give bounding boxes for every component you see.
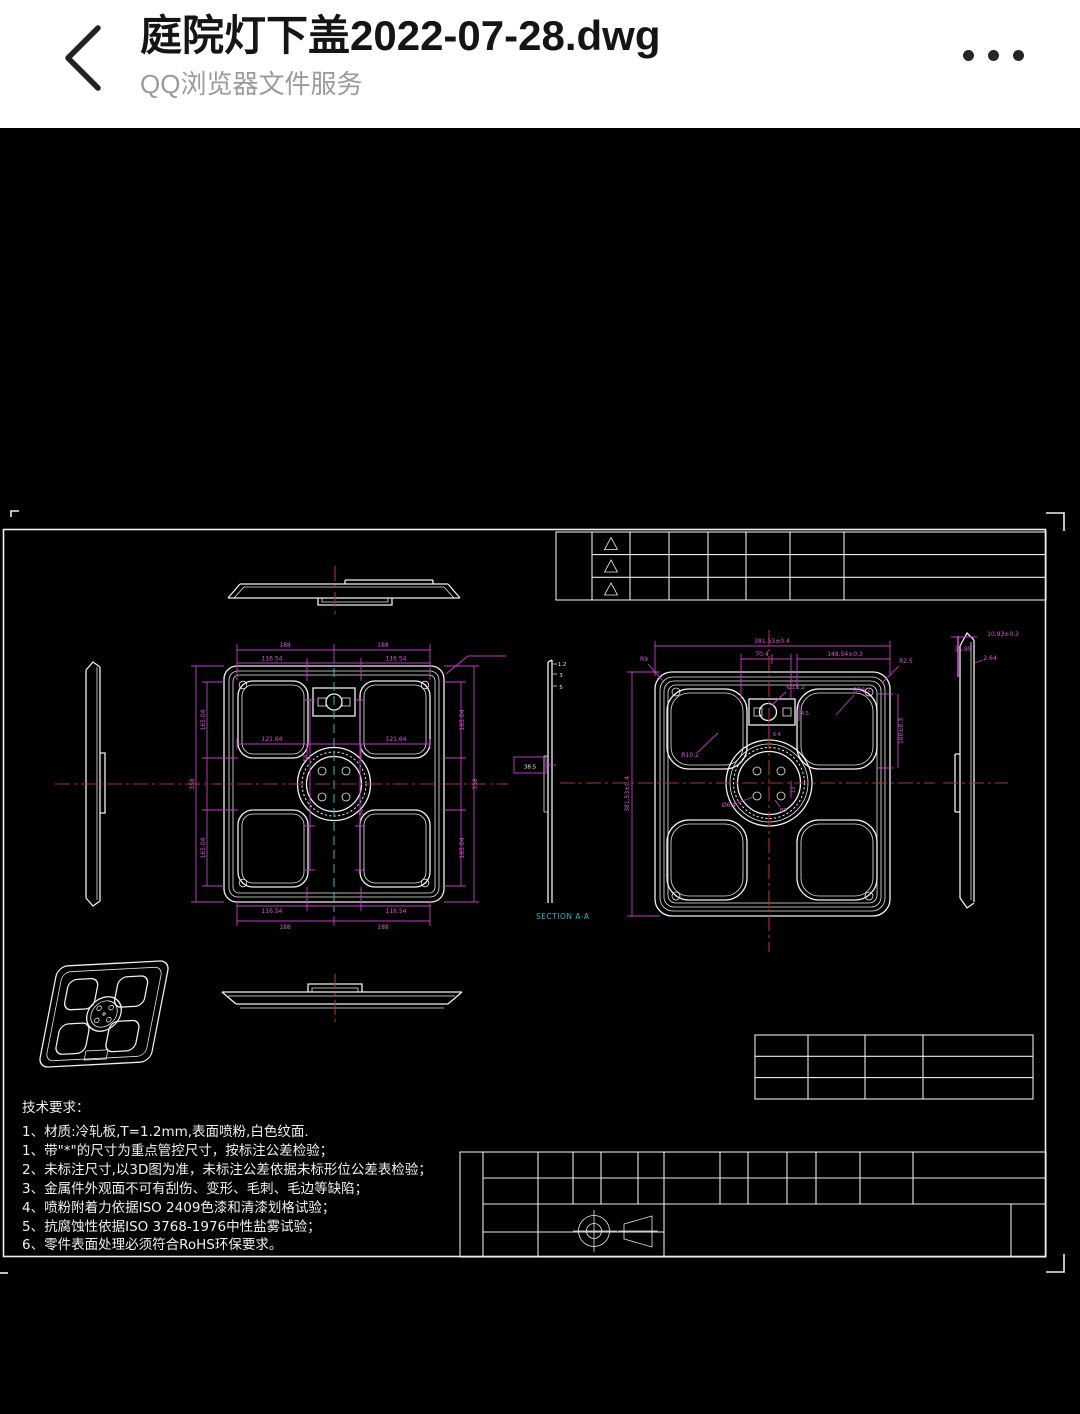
top-profile-view bbox=[228, 566, 460, 618]
svg-text:38.5: 38.5 bbox=[524, 765, 537, 771]
revision-triangle-icon bbox=[605, 560, 618, 572]
section-label: SECTION A-A bbox=[536, 912, 590, 921]
main-plan-view bbox=[224, 666, 444, 912]
svg-text:188: 188 bbox=[377, 642, 389, 649]
svg-text:165.04: 165.04 bbox=[459, 837, 466, 858]
svg-text:165.04: 165.04 bbox=[459, 709, 466, 730]
svg-text:3、金属件外观面不可有刮伤、变形、毛刺、毛边等缺陷；: 3、金属件外观面不可有刮伤、变形、毛刺、毛边等缺陷； bbox=[22, 1180, 368, 1197]
svg-text:116.54: 116.54 bbox=[262, 656, 283, 663]
svg-text:165.04: 165.04 bbox=[200, 837, 207, 858]
svg-text:10.93±0.3: 10.93±0.3 bbox=[987, 631, 1019, 638]
svg-text:R9: R9 bbox=[640, 656, 648, 663]
svg-text:4、喷粉附着力依据ISO 2409色漆和清漆划格试验；: 4、喷粉附着力依据ISO 2409色漆和清漆划格试验； bbox=[22, 1199, 335, 1216]
svg-text:58: 58 bbox=[359, 809, 365, 815]
tech-heading: 技术要求： bbox=[22, 1100, 90, 1116]
svg-text:100±0.3: 100±0.3 bbox=[898, 718, 905, 744]
revision-triangle-icon bbox=[605, 583, 618, 595]
section-view bbox=[655, 672, 890, 916]
svg-text:121.64: 121.64 bbox=[386, 736, 407, 743]
svg-text:5、抗腐蚀性依据ISO 3768-1976中性盐雾试验；: 5、抗腐蚀性依据ISO 3768-1976中性盐雾试验； bbox=[22, 1219, 321, 1235]
title-block bbox=[460, 1152, 1046, 1257]
svg-text:6.4: 6.4 bbox=[773, 732, 781, 738]
svg-text:5: 5 bbox=[559, 685, 563, 691]
svg-text:35.95: 35.95 bbox=[954, 646, 971, 653]
svg-text:1.2: 1.2 bbox=[558, 662, 567, 668]
cad-drawing: 188 188 116.54 116.54 121.64 121.64 116.… bbox=[0, 128, 1080, 1409]
svg-text:188: 188 bbox=[279, 924, 291, 931]
svg-text:6、零件表面处理必须符合RoHS环保要求。: 6、零件表面处理必须符合RoHS环保要求。 bbox=[22, 1237, 282, 1253]
isometric-view bbox=[38, 960, 170, 1067]
right-profile-view: 10.93±0.3 35.95 2.64 bbox=[951, 631, 1019, 908]
svg-text:R10.2: R10.2 bbox=[681, 752, 699, 759]
svg-text:R38.1: R38.1 bbox=[853, 687, 871, 694]
svg-text:148.54±0.3: 148.54±0.3 bbox=[827, 651, 863, 658]
cad-preview-canvas[interactable]: 188 188 116.54 116.54 121.64 121.64 116.… bbox=[0, 128, 1080, 1409]
back-chevron-icon bbox=[68, 28, 98, 88]
svg-text:Ø8: Ø8 bbox=[779, 807, 786, 814]
section-strip: 1.2 3 5 38.5 SECTION A-A bbox=[514, 660, 590, 921]
svg-text:116.54: 116.54 bbox=[262, 908, 283, 915]
svg-text:381.53±0.4: 381.53±0.4 bbox=[754, 638, 790, 645]
svg-text:Ø15.2: Ø15.2 bbox=[787, 684, 805, 691]
svg-text:188: 188 bbox=[377, 924, 389, 931]
parts-table bbox=[755, 1035, 1033, 1099]
svg-text:R2.5: R2.5 bbox=[899, 658, 913, 665]
more-menu-button[interactable] bbox=[963, 50, 1024, 61]
svg-text:2.64: 2.64 bbox=[983, 655, 997, 662]
svg-text:Ø6.4: Ø6.4 bbox=[722, 802, 736, 809]
svg-text:3: 3 bbox=[559, 673, 563, 679]
svg-text:58: 58 bbox=[303, 755, 309, 761]
tech-requirements: 技术要求： 1、材质:冷轧板,T=1.2mm,表面喷粉,白色纹面. 1、带"*"… bbox=[22, 1100, 432, 1253]
svg-text:70.4: 70.4 bbox=[755, 651, 769, 658]
dot-icon bbox=[1013, 50, 1024, 61]
viewer-header: 庭院灯下盖2022-07-28.dwg QQ浏览器文件服务 bbox=[0, 0, 1080, 128]
svg-text:1、带"*"的尺寸为重点管控尺寸，按标注公差检验；: 1、带"*"的尺寸为重点管控尺寸，按标注公差检验； bbox=[22, 1143, 333, 1159]
svg-text:1、材质:冷轧板,T=1.2mm,表面喷粉,白色纹面.: 1、材质:冷轧板,T=1.2mm,表面喷粉,白色纹面. bbox=[22, 1123, 309, 1140]
svg-text:4.5: 4.5 bbox=[801, 711, 809, 717]
svg-text:2、未标注尺寸,以3D图为准，未标注公差依据未标形位公差表检: 2、未标注尺寸,以3D图为准，未标注公差依据未标形位公差表检验； bbox=[22, 1162, 432, 1178]
svg-text:116.54: 116.54 bbox=[386, 908, 407, 915]
bottom-profile-view bbox=[222, 974, 462, 1022]
dot-icon bbox=[988, 50, 999, 61]
projection-symbol-icon bbox=[573, 1210, 658, 1252]
qq-browser-file-viewer: { "header": { "title": "庭院灯下盖2022-07-28.… bbox=[0, 0, 1080, 1409]
svg-text:381.53±0.4: 381.53±0.4 bbox=[624, 776, 631, 812]
file-title: 庭院灯下盖2022-07-28.dwg bbox=[140, 10, 920, 62]
file-source-label: QQ浏览器文件服务 bbox=[140, 64, 920, 104]
svg-text:116.54: 116.54 bbox=[386, 656, 407, 663]
svg-text:165.04: 165.04 bbox=[200, 709, 207, 730]
revision-triangle-icon bbox=[605, 538, 618, 550]
file-titles: 庭院灯下盖2022-07-28.dwg QQ浏览器文件服务 bbox=[140, 10, 920, 104]
svg-text:13: 13 bbox=[791, 787, 797, 793]
revision-table bbox=[556, 532, 1046, 600]
centerlines bbox=[55, 630, 1008, 952]
plan-view-dimensions: 188 188 116.54 116.54 121.64 121.64 116.… bbox=[189, 642, 506, 931]
dot-icon bbox=[963, 50, 974, 61]
svg-text:188: 188 bbox=[279, 642, 291, 649]
svg-text:121.64: 121.64 bbox=[262, 736, 283, 743]
back-button[interactable] bbox=[58, 20, 110, 96]
